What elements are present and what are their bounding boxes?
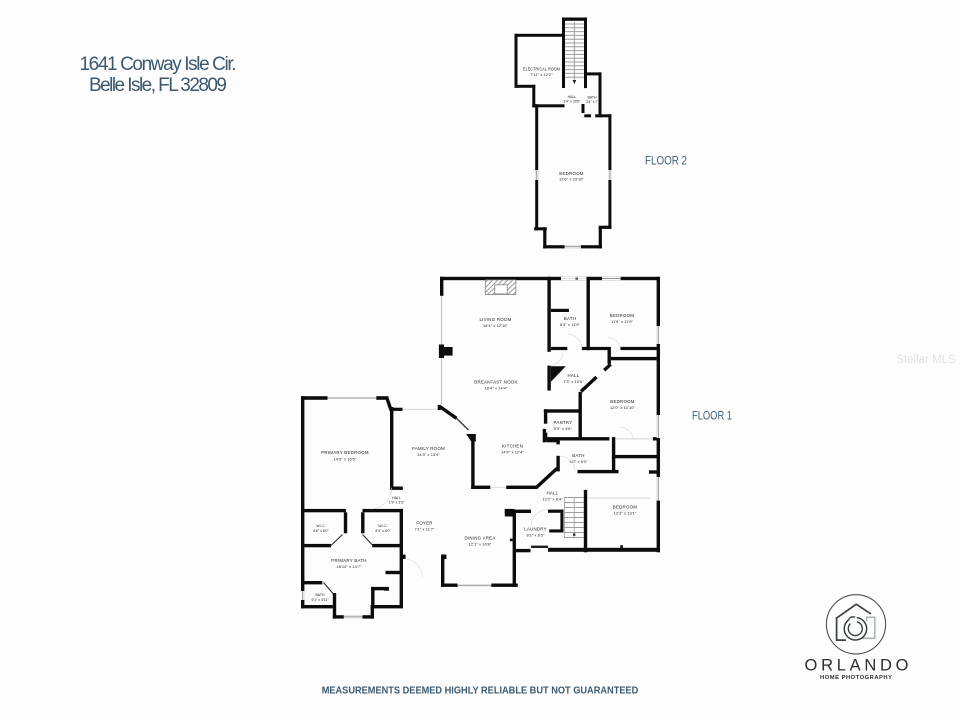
svg-text:8'1" x 6'5": 8'1" x 6'5"	[526, 533, 545, 538]
svg-text:9'1" x 3'11": 9'1" x 3'11"	[312, 598, 330, 602]
svg-text:DINING AREA: DINING AREA	[464, 536, 495, 541]
svg-text:9'0" x 5'3": 9'0" x 5'3"	[569, 459, 588, 464]
svg-text:16'4" x 12'10": 16'4" x 12'10"	[483, 323, 508, 328]
svg-text:BEDROOM: BEDROOM	[610, 313, 635, 318]
svg-text:8'4" x 6'0": 8'4" x 6'0"	[375, 529, 391, 533]
svg-text:KITCHEN: KITCHEN	[502, 444, 523, 449]
svg-text:FLOOR 1: FLOOR 1	[692, 409, 732, 423]
svg-text:FOYER: FOYER	[416, 521, 432, 526]
svg-text:1641 Conway Isle Cir.: 1641 Conway Isle Cir.	[80, 54, 237, 75]
svg-text:Stellar MLS: Stellar MLS	[896, 354, 956, 366]
svg-text:ELECTRICAL ROOM: ELECTRICAL ROOM	[523, 67, 560, 72]
svg-text:BATH: BATH	[572, 453, 584, 458]
svg-text:HALL: HALL	[568, 95, 577, 99]
svg-text:6'3" x 11'9": 6'3" x 11'9"	[560, 322, 581, 327]
svg-text:FAMILY ROOM: FAMILY ROOM	[412, 446, 445, 451]
svg-text:HALL: HALL	[568, 373, 580, 378]
svg-text:LIVING ROOM: LIVING ROOM	[479, 317, 511, 322]
svg-text:11'9" x 11'9": 11'9" x 11'9"	[611, 319, 634, 324]
svg-text:W.I.C.: W.I.C.	[378, 524, 388, 528]
svg-text:12'1" x 16'8": 12'1" x 16'8"	[469, 542, 492, 547]
svg-text:LAUNDRY: LAUNDRY	[524, 527, 547, 532]
svg-text:HOME PHOTOGRAPHY: HOME PHOTOGRAPHY	[820, 675, 892, 681]
svg-text:16'4" x 14'4": 16'4" x 14'4"	[485, 386, 508, 391]
svg-text:BEDROOM: BEDROOM	[610, 399, 635, 404]
svg-text:PRIMARY BEDROOM: PRIMARY BEDROOM	[321, 450, 369, 455]
svg-text:7'3" x 10'6": 7'3" x 10'6"	[563, 379, 584, 384]
svg-text:7'11" x 12'2": 7'11" x 12'2"	[530, 72, 553, 77]
svg-text:12'2" x 6'4": 12'2" x 6'4"	[542, 497, 563, 502]
svg-text:BREAKFAST NOOK: BREAKFAST NOOK	[474, 380, 517, 385]
svg-text:6'6" x 6'0": 6'6" x 6'0"	[313, 529, 329, 533]
svg-text:MEASUREMENTS DEEMED HIGHLY REL: MEASUREMENTS DEEMED HIGHLY RELIABLE BUT …	[322, 685, 639, 697]
svg-text:1'9" x 3'3": 1'9" x 3'3"	[389, 501, 405, 505]
svg-text:7'1" x 11'7": 7'1" x 11'7"	[414, 527, 435, 532]
svg-text:3'4" x 26'5": 3'4" x 26'5"	[563, 100, 581, 104]
svg-text:14'4" x 12'4": 14'4" x 12'4"	[501, 450, 524, 455]
svg-text:HALL: HALL	[392, 496, 401, 500]
svg-text:14'3" x 13'4": 14'3" x 13'4"	[417, 452, 440, 457]
svg-text:12'3" x 13'1": 12'3" x 13'1"	[614, 511, 637, 516]
svg-text:5'9" x 4'6": 5'9" x 4'6"	[554, 426, 573, 431]
svg-text:12'6" x 23'10": 12'6" x 23'10"	[559, 177, 584, 182]
svg-text:BEDROOM: BEDROOM	[559, 171, 584, 176]
svg-text:W.I.C.: W.I.C.	[316, 524, 326, 528]
svg-text:PRIMARY BATH: PRIMARY BATH	[331, 558, 366, 563]
svg-text:FLOOR 2: FLOOR 2	[645, 154, 687, 168]
svg-text:HALL: HALL	[547, 491, 559, 496]
svg-text:12'0" x 12'10": 12'0" x 12'10"	[610, 405, 635, 410]
svg-text:BATH: BATH	[587, 96, 597, 100]
svg-text:BATH: BATH	[315, 593, 325, 597]
svg-text:2'4" x 7': 2'4" x 7'	[586, 100, 598, 104]
svg-text:BATH: BATH	[564, 316, 576, 321]
svg-text:PANTRY: PANTRY	[554, 420, 573, 425]
svg-text:14'9" x 16'6": 14'9" x 16'6"	[334, 457, 357, 462]
svg-text:Belle Isle, FL 32809: Belle Isle, FL 32809	[89, 75, 227, 96]
svg-text:16'10" x 14'7": 16'10" x 14'7"	[337, 564, 362, 569]
svg-text:BEDROOM: BEDROOM	[613, 505, 638, 510]
